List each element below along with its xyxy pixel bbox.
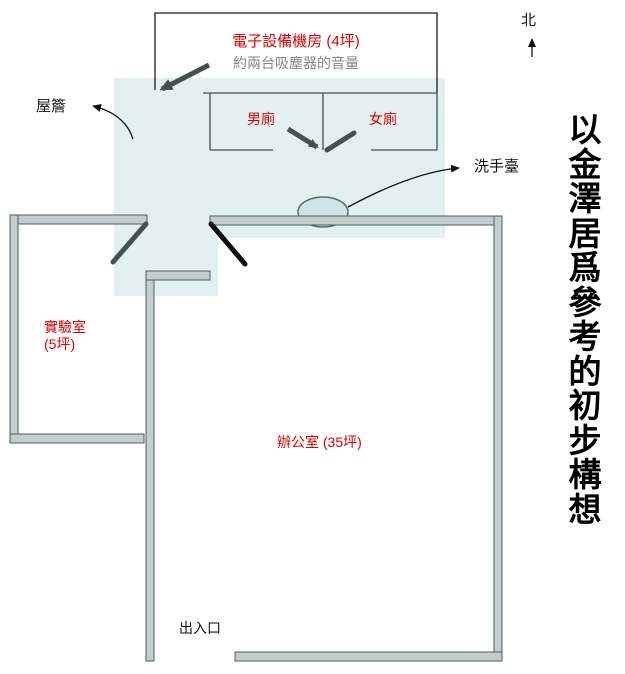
mens-toilet-label: 男廁 [247, 111, 275, 127]
office-room-label: 辦公室 (35坪) [277, 434, 362, 450]
shaded-zone-lower [114, 238, 218, 296]
wall-office-right [494, 216, 502, 661]
north-label: 北 [521, 12, 536, 29]
wall-office-bottom [235, 652, 502, 661]
walls [10, 215, 502, 661]
eaves-label: 屋簷 [36, 98, 66, 115]
floor-plan-drawing [0, 0, 625, 674]
womens-toilet-label: 女廁 [369, 111, 397, 127]
lab-room-name: 實驗室 [44, 319, 86, 335]
equipment-room-note: 約兩台吸塵器的音量 [155, 55, 437, 71]
equipment-room-label: 電子設備機房 (4坪) [155, 33, 437, 50]
wall-entry-bar [146, 271, 210, 280]
washbasin-label: 洗手臺 [474, 158, 519, 175]
shaded-zone-main [114, 78, 445, 238]
wall-office-top [210, 216, 502, 225]
wall-lab-bottom [10, 434, 144, 443]
entrance-label: 出入口 [179, 620, 221, 636]
side-title-vertical: 以金澤居爲參考的初步構想 [566, 114, 604, 528]
lab-room-label: 實驗室(5坪) [44, 319, 86, 353]
wall-office-left [146, 280, 154, 661]
floor-plan-diagram: 電子設備機房 (4坪) 約兩台吸塵器的音量 北 屋簷 男廁 女廁 洗手臺 實驗室… [0, 0, 625, 674]
wall-lab-top [10, 215, 147, 224]
lab-room-area: (5坪) [44, 336, 75, 352]
wall-lab-left [10, 215, 18, 443]
